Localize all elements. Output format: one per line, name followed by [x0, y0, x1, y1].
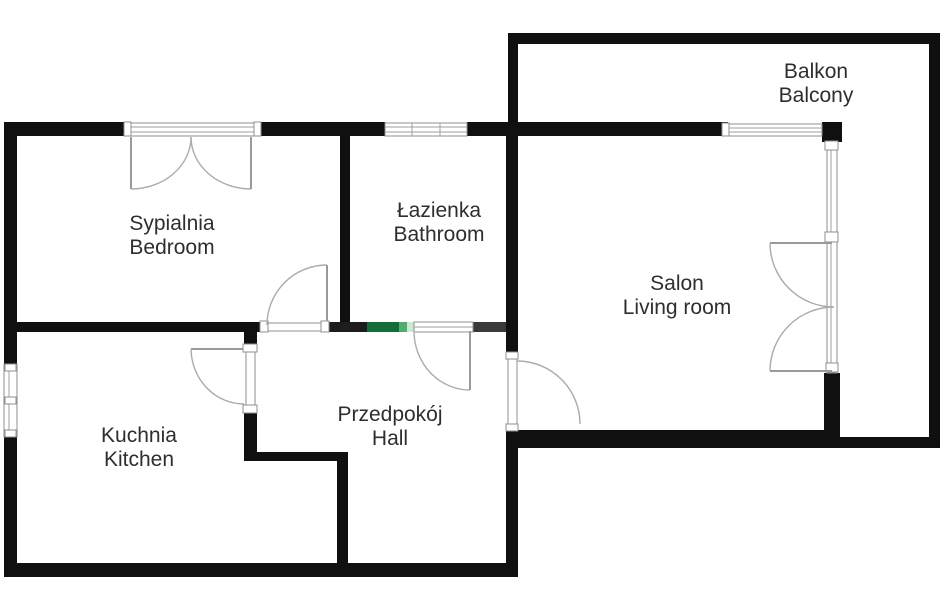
room-label-balcony-en: Balcony: [779, 84, 854, 107]
wall-segment: [824, 373, 840, 430]
room-label-kitchen-en: Kitchen: [104, 448, 174, 471]
wall-segment: [244, 452, 348, 461]
wall-segment: [244, 332, 257, 344]
bedroom-door-track: [268, 323, 321, 331]
balcony-wall: [840, 437, 940, 448]
door-post: [321, 321, 329, 332]
kitchen-door-arc: [191, 349, 244, 404]
wall-segment: [261, 122, 385, 136]
window-post: [825, 141, 838, 150]
door-post: [506, 424, 518, 431]
window-post: [5, 397, 16, 404]
wall-segment: [17, 322, 260, 332]
windows: [4, 122, 838, 437]
balcony-wall: [929, 44, 940, 437]
room-labels: Sypialnia Bedroom Łazienka Bathroom Balk…: [101, 60, 854, 471]
wall-segment: [337, 461, 348, 563]
walls: [4, 33, 940, 577]
window-post: [5, 364, 16, 371]
window-post: [254, 122, 261, 136]
living-room-window: [729, 124, 822, 136]
kitchen-door-track: [246, 352, 255, 405]
bedroom-door-arc: [267, 265, 327, 325]
room-label-bathroom-en: Bathroom: [393, 223, 484, 246]
hall-door-track: [508, 359, 517, 424]
floor-plan: Sypialnia Bedroom Łazienka Bathroom Balk…: [0, 0, 943, 615]
door-swings: [131, 137, 834, 424]
bathroom-door-arc: [414, 331, 470, 390]
wall-segment: [340, 136, 350, 322]
bedroom-window-arc-left: [131, 137, 191, 189]
wall-segment: [467, 122, 728, 136]
door-post: [506, 352, 518, 359]
window-post: [722, 123, 729, 136]
balcony-door-arc-upper: [770, 243, 834, 307]
wall-segment: [328, 322, 367, 332]
balcony-glazing: [827, 142, 837, 373]
wall-corner-post: [822, 122, 842, 142]
room-label-living-room-pl: Salon: [650, 272, 704, 295]
room-label-bedroom-en: Bedroom: [129, 236, 214, 259]
door-post: [243, 344, 257, 352]
room-label-hall-en: Hall: [372, 427, 408, 450]
balcony-door-arc-lower: [770, 307, 834, 371]
wall-segment: [506, 431, 518, 577]
balcony-wall: [508, 33, 518, 122]
watermark-bar-mid: [399, 322, 407, 332]
watermark-bar-dark: [367, 322, 399, 332]
room-label-hall-pl: Przedpokój: [337, 403, 442, 426]
hall-door-arc: [517, 361, 580, 424]
door-post: [243, 405, 257, 413]
room-label-living-room-en: Living room: [623, 296, 732, 319]
wall-segment: [4, 122, 17, 364]
wall-segment: [506, 430, 840, 448]
brand-watermark-bar: [367, 322, 414, 332]
balcony-wall: [508, 33, 940, 44]
room-label-bathroom-pl: Łazienka: [397, 199, 481, 222]
wall-segment: [244, 413, 257, 453]
wall-segment: [4, 437, 17, 577]
room-label-balcony-pl: Balkon: [784, 60, 848, 83]
room-label-bedroom-pl: Sypialnia: [129, 212, 215, 235]
bedroom-window-arc-right: [191, 137, 251, 189]
window-post: [825, 232, 838, 242]
wall-segment: [4, 122, 125, 136]
wall-segment: [506, 136, 518, 352]
bathroom-window: [385, 123, 467, 136]
room-label-kitchen-pl: Kuchnia: [101, 424, 177, 447]
wall-segment: [4, 563, 518, 577]
window-post: [124, 122, 131, 136]
bedroom-window: [129, 123, 257, 136]
watermark-bar-light: [407, 322, 414, 332]
window-post: [5, 430, 16, 437]
